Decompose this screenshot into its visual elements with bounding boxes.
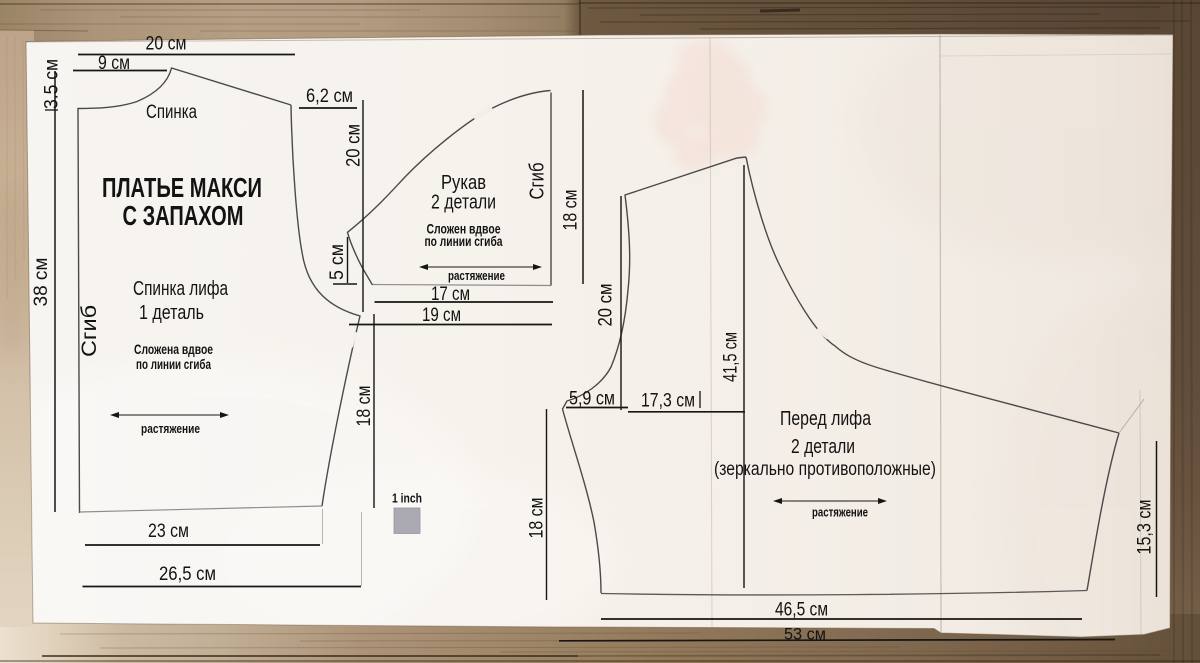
svg-text:2 детали: 2 детали [431, 192, 496, 214]
svg-text:17,3 см: 17,3 см [641, 391, 695, 412]
svg-text:38 см: 38 см [31, 258, 52, 307]
svg-text:20 см: 20 см [344, 124, 365, 167]
svg-text:20 см: 20 см [146, 34, 187, 55]
svg-text:С ЗАПАХОМ: С ЗАПАХОМ [123, 200, 244, 231]
svg-text:растяжение: растяжение [141, 421, 200, 436]
svg-text:1 inch: 1 inch [392, 491, 422, 506]
svg-text:Перед лифа: Перед лифа [780, 408, 872, 430]
svg-text:Спинка: Спинка [146, 102, 197, 123]
svg-text:растяжение: растяжение [812, 505, 868, 520]
svg-text:5 см: 5 см [327, 244, 348, 280]
svg-text:Спинка лифа: Спинка лифа [133, 278, 229, 300]
svg-text:46,5 см: 46,5 см [775, 600, 828, 621]
svg-text:по линии сгиба: по линии сгиба [425, 233, 503, 249]
svg-text:3.5 см: 3.5 см [42, 59, 63, 109]
svg-text:19 см: 19 см [422, 305, 461, 326]
svg-text:18 см: 18 см [561, 190, 582, 231]
svg-text:18 см: 18 см [527, 498, 548, 539]
svg-text:53 см: 53 см [784, 625, 826, 644]
svg-text:23 см: 23 см [148, 521, 189, 542]
svg-text:ПЛАТЬЕ МАКСИ: ПЛАТЬЕ МАКСИ [102, 172, 262, 203]
svg-text:(зеркально противоположные): (зеркально противоположные) [714, 459, 936, 480]
svg-text:5,9 см: 5,9 см [569, 389, 615, 410]
svg-text:9 см: 9 см [98, 53, 130, 74]
svg-text:Сгиб: Сгиб [527, 163, 549, 200]
svg-text:26,5 см: 26,5 см [159, 564, 216, 585]
svg-text:18 см: 18 см [354, 386, 375, 427]
svg-text:Сложена вдвое: Сложена вдвое [134, 341, 213, 357]
svg-text:20 см: 20 см [596, 284, 617, 327]
svg-text:6,2 см: 6,2 см [306, 86, 353, 107]
svg-text:растяжение: растяжение [448, 268, 505, 283]
svg-text:по линии сгиба: по линии сгиба [136, 356, 211, 372]
svg-text:2 детали: 2 детали [791, 436, 855, 458]
svg-text:Сгиб: Сгиб [78, 305, 101, 357]
svg-text:17 см: 17 см [431, 284, 470, 305]
svg-text:15,3 см: 15,3 см [1135, 500, 1156, 555]
svg-text:1 деталь: 1 деталь [139, 302, 204, 324]
svg-text:41,5 см: 41,5 см [721, 332, 742, 382]
